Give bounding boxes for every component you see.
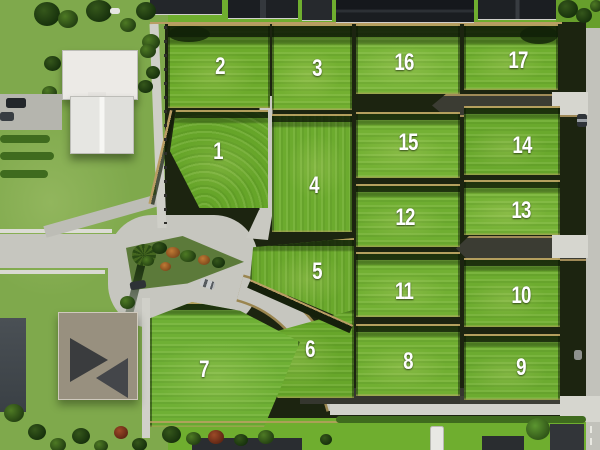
- tree: [576, 8, 592, 23]
- tree: [162, 426, 181, 443]
- tree: [72, 428, 90, 444]
- mid-walkway-flare: [246, 210, 273, 240]
- parked-car: [0, 112, 14, 121]
- lot-label-4: 4: [309, 174, 319, 198]
- house-roof: [336, 0, 474, 23]
- tree: [140, 44, 156, 58]
- house-roof: [228, 0, 298, 19]
- lot-label-9: 9: [516, 356, 526, 380]
- hedge-row: [0, 135, 50, 143]
- tree: [132, 438, 147, 450]
- south-houses-roof: [482, 436, 524, 450]
- tree: [58, 10, 78, 28]
- lot-label-2: 2: [215, 55, 225, 79]
- right-road: [586, 28, 600, 450]
- tree: [120, 18, 136, 32]
- tree: [136, 2, 156, 20]
- white-gable-building: [70, 96, 134, 154]
- lot-label-5: 5: [312, 260, 322, 284]
- tree: [320, 434, 332, 445]
- tree: [258, 430, 274, 444]
- lot-label-12: 12: [395, 206, 414, 230]
- roadside-object: [574, 350, 582, 360]
- tree: [50, 438, 66, 450]
- lot-9: [464, 334, 560, 400]
- island-shrub: [180, 250, 196, 262]
- tree: [44, 56, 61, 71]
- lot-label-10: 10: [511, 284, 530, 308]
- tree: [138, 80, 153, 93]
- lot-label-13: 13: [511, 199, 530, 223]
- tree: [146, 66, 160, 79]
- island-shrub: [152, 242, 167, 254]
- hedge-row: [0, 152, 54, 160]
- island-shrub: [166, 247, 180, 258]
- tree: [234, 434, 248, 446]
- lot-label-14: 14: [512, 134, 531, 158]
- road-marking: [590, 426, 592, 433]
- road-marking: [590, 438, 592, 445]
- tree: [120, 296, 135, 309]
- parked-car: [6, 98, 26, 108]
- white-truck: [430, 426, 444, 450]
- tree: [114, 426, 128, 439]
- house-roof: [150, 0, 222, 15]
- parked-car: [577, 114, 587, 127]
- west-dark-roof-house: [0, 318, 26, 412]
- tree: [186, 432, 201, 445]
- south-houses-roof: [550, 424, 584, 450]
- driveway-apron-mid: [552, 235, 588, 258]
- tree: [208, 430, 224, 444]
- tree: [558, 0, 578, 18]
- tree: [28, 424, 46, 440]
- island-shrub: [142, 256, 154, 266]
- lot-label-17: 17: [508, 49, 527, 73]
- lot-label-11: 11: [395, 280, 413, 304]
- parked-vehicle: [110, 8, 120, 14]
- lot-label-7: 7: [199, 358, 209, 382]
- tree: [86, 0, 112, 22]
- lot-label-8: 8: [403, 350, 413, 374]
- house-roof: [478, 0, 556, 20]
- hedge-row: [0, 170, 48, 178]
- lot-label-3: 3: [312, 57, 322, 81]
- tree-shadow-lot17: [520, 26, 558, 44]
- west-fence-posts: [164, 26, 167, 224]
- tree: [526, 418, 550, 440]
- lot-label-1: 1: [213, 140, 223, 164]
- tree: [4, 404, 24, 422]
- lot-label-16: 16: [394, 51, 413, 75]
- island-shrub: [160, 262, 171, 271]
- island-shrub: [198, 255, 210, 265]
- tree-shadow-lot2: [168, 26, 210, 42]
- road-hedge: [336, 416, 586, 423]
- tree: [590, 0, 600, 12]
- lot-label-6: 6: [305, 338, 315, 362]
- house-roof: [302, 0, 332, 21]
- tree: [94, 440, 108, 450]
- lot-label-15: 15: [398, 131, 417, 155]
- island-shrub: [212, 257, 225, 268]
- tree: [34, 2, 60, 26]
- aerial-subdivision-photo: 1 2 3 4 5 6 7 8 9 10 11 12 13 14 15 16 1…: [0, 0, 600, 450]
